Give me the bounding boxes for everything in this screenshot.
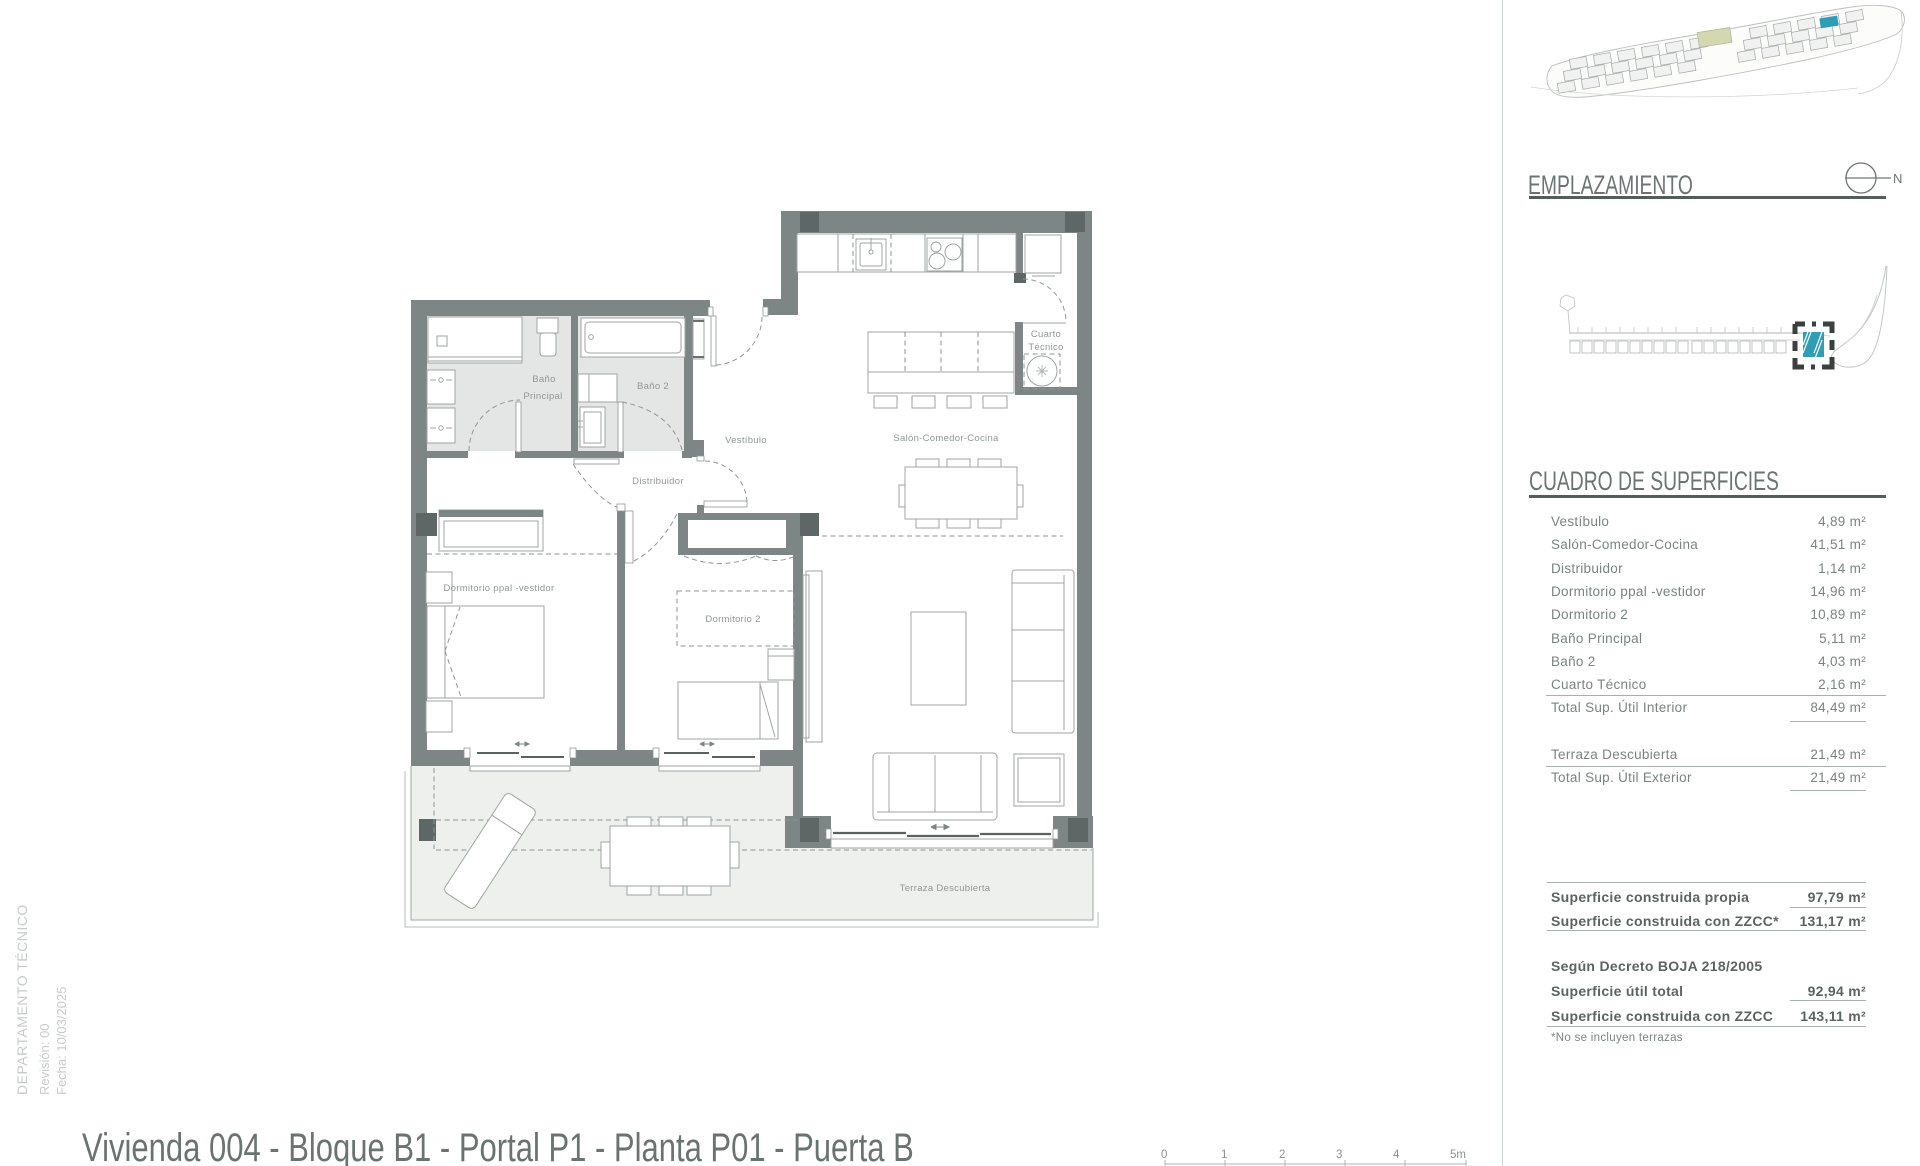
svg-text:Baño 2: Baño 2 (637, 381, 669, 392)
svg-text:Principal: Principal (523, 391, 562, 402)
svg-text:Dormitorio ppal -vestidor: Dormitorio ppal -vestidor (444, 583, 555, 594)
svg-text:N: N (1893, 171, 1902, 186)
svg-text:Técnico: Técnico (1028, 342, 1063, 353)
svg-text:Vestíbulo: Vestíbulo (725, 435, 767, 446)
svg-text:Dormitorio 2: Dormitorio 2 (705, 614, 760, 625)
svg-text:Distribuidor: Distribuidor (632, 476, 684, 487)
svg-text:Baño: Baño (532, 374, 555, 385)
svg-text:Cuarto: Cuarto (1031, 329, 1061, 340)
svg-text:Terraza Descubierta: Terraza Descubierta (900, 883, 991, 894)
svg-text:Salón-Comedor-Cocina: Salón-Comedor-Cocina (893, 433, 999, 444)
